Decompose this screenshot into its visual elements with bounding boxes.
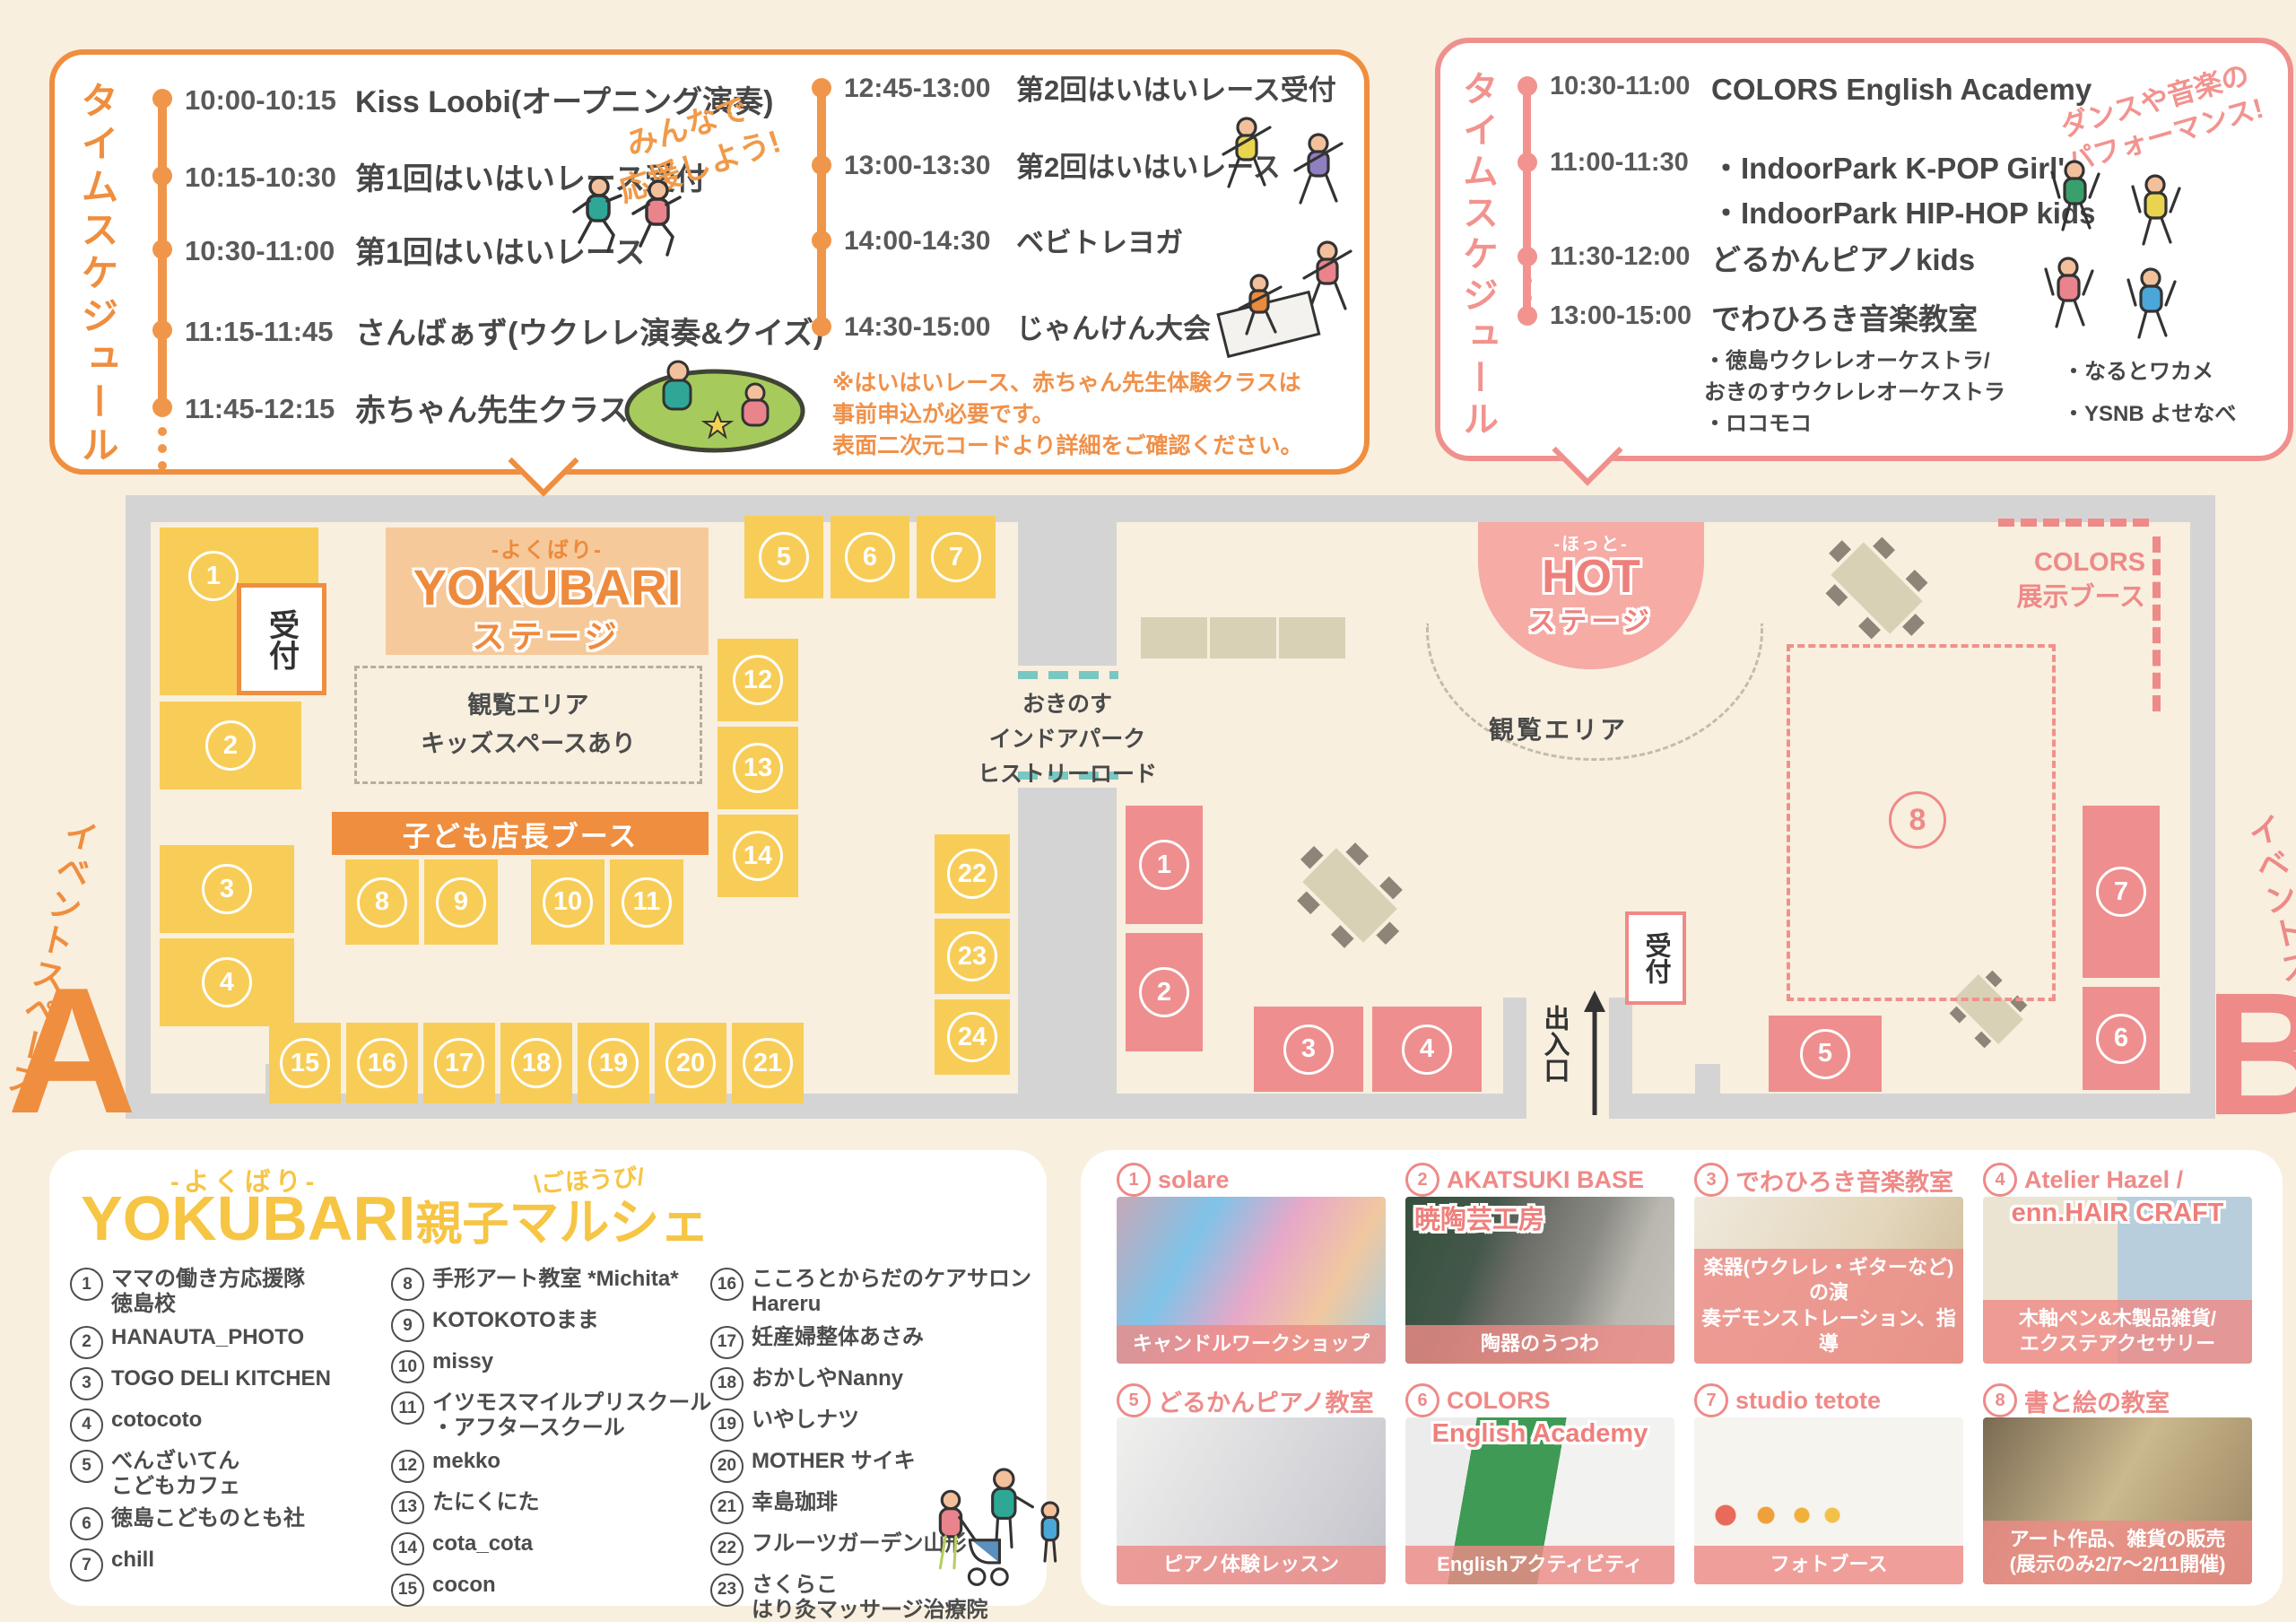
booth-b-7: 7 [2083, 806, 2160, 978]
booth-b-1: 1 [1126, 806, 1203, 924]
table-with-chairs [1278, 824, 1422, 967]
vendor-item-18: 18おかしやNanny [710, 1366, 1040, 1400]
vendor-photo-photobooth: フォトブース [1694, 1417, 1963, 1584]
runners-illustration [563, 172, 698, 262]
yoga-illustration [1195, 108, 1354, 368]
booth-a-14: 14 [717, 815, 798, 897]
booth-a-18: 18 [500, 1023, 572, 1103]
schedule-row: 12:45-13:00 第2回はいはいレース受付 [812, 72, 1350, 109]
marche-title-main: YOKUBARI [81, 1182, 415, 1254]
right-schedule-title: タイムスケジュール [1451, 70, 1503, 441]
timeline-dot [1518, 76, 1537, 96]
booth-a-4: 4 [160, 938, 294, 1026]
vendor-card-4: 4Atelier Hazel / enn.HAIR CRAFT 木軸ペン&木製品… [1983, 1163, 2252, 1364]
table-with-chairs [1807, 519, 1946, 658]
vendor-card-1: 1solare キャンドルワークショップ [1117, 1163, 1386, 1364]
reception-a: 受付 [237, 583, 326, 695]
table [1210, 617, 1276, 658]
schedule-row: 10:30-11:00 第1回はいはいレース [152, 233, 834, 275]
vendor-item-6: 6徳島こどものとも社 [70, 1506, 386, 1540]
vendor-item-7: 7chill [70, 1548, 386, 1582]
timeline-dot [1518, 247, 1537, 266]
kids-manager-banner: 子ども店長ブース [332, 812, 709, 855]
corridor-wall-upper [1018, 495, 1117, 666]
timeline-dot [152, 320, 172, 340]
booth-b-4: 4 [1372, 1007, 1482, 1092]
marche-title-suffix: 親子 [415, 1186, 509, 1253]
booth-a-13: 13 [717, 727, 798, 809]
event-flyer: タイムスケジュール 10:00-10:15 Kiss Loobi(オープニング演… [0, 0, 2296, 1622]
vendor-card-7: 7studio tetote フォトブース [1694, 1383, 1963, 1584]
dancers-illustration [2025, 151, 2209, 353]
vendor-card-5: 5どるかんピアノ教室 ピアノ体験レッスン [1117, 1383, 1386, 1584]
timeline-dot [152, 166, 172, 186]
vendor-item-8: 8手形アート教室 *Michita* [391, 1267, 714, 1301]
vendor-item-12: 12mekko [391, 1449, 714, 1483]
card-title: 4Atelier Hazel / [1983, 1163, 2252, 1197]
booth-a-21: 21 [732, 1023, 804, 1103]
card-title: 7studio tetote [1694, 1383, 1963, 1417]
vendor-item-19: 19いやしナツ [710, 1408, 1040, 1442]
corridor-label: おきのす インドアパーク ヒストリーロード [969, 687, 1166, 791]
yokubari-stage-name: YOKUBARI [386, 563, 709, 611]
timeline-dot [812, 78, 831, 98]
corridor-dashed-upper [1018, 671, 1118, 679]
dewahiroki-sub-left: ・徳島ウクレレオーケストラ/ おきのすウクレレオーケストラ ・ロコモコ [1704, 346, 2005, 440]
vendor-item-16: 16こころとからだのケアサロン Hareru [710, 1267, 1040, 1318]
marche-title-suffix2: マルシェ [509, 1182, 709, 1255]
event-space-b-letter: B [2205, 967, 2296, 1142]
vendor-photo-candles: キャンドルワークショップ [1117, 1197, 1386, 1364]
family-stroller-illustration [919, 1455, 1076, 1606]
card-title: 6COLORS [1405, 1383, 1674, 1417]
booth-a-16: 16 [346, 1023, 418, 1103]
vendor-list-col2: 8手形アート教室 *Michita* 9KOTOKOTOまま 10missy 1… [391, 1267, 714, 1614]
picnic-mat-illustration [619, 339, 812, 460]
vendor-item-14: 14cota_cota [391, 1531, 714, 1565]
booth-a-1-number: 1 [188, 551, 239, 601]
timeline-dot [152, 89, 172, 109]
booth-a-6: 6 [831, 516, 909, 598]
vendor-item-11: 11イツモスマイルプリスクール ・アフタースクール [391, 1391, 714, 1442]
vendor-item-1: 1ママの働き方応援隊 徳島校 [70, 1267, 386, 1318]
vendor-card-6: 6COLORS English Academy Englishアクティビティ [1405, 1383, 1674, 1584]
card-title: 8書と絵の教室 [1983, 1383, 2252, 1417]
booth-a-7: 7 [917, 516, 996, 598]
colors-booth-dash-right [2152, 536, 2161, 711]
marche-title: -よくばり- \ごほうび/ YOKUBARI 親子 マルシェ [81, 1161, 717, 1261]
vendor-item-4: 4cotocoto [70, 1408, 386, 1442]
vendor-item-10: 10missy [391, 1349, 714, 1383]
booth-a-5: 5 [744, 516, 823, 598]
entrance-pillar-left [1503, 998, 1526, 1096]
vendor-item-15: 15cocon [391, 1573, 714, 1607]
reception-b: 受付 [1625, 911, 1686, 1005]
booth-a-19: 19 [578, 1023, 649, 1103]
timeline-continuation [158, 427, 167, 470]
dewahiroki-sub-right: ・なるとワカメ ・YSNB よせなべ [2063, 352, 2236, 436]
left-schedule-title: タイムスケジュール [70, 81, 125, 468]
vendor-item-17: 17妊産婦整体あさみ [710, 1325, 1040, 1359]
timeline-continuation [1523, 276, 1532, 302]
card-title: 3でわひろき音楽教室 [1694, 1163, 1963, 1197]
wall-bottom-right [1609, 1094, 2215, 1119]
table [1141, 617, 1207, 658]
booth-a-22: 22 [935, 834, 1010, 913]
card-title: 2AKATSUKI BASE [1405, 1163, 1674, 1197]
timeline-dot [152, 240, 172, 259]
card-title: 5どるかんピアノ教室 [1117, 1383, 1386, 1417]
colors-booth-dash-top [1998, 519, 2149, 527]
wall-stub [1695, 1064, 1720, 1094]
vendor-card-2: 2AKATSUKI BASE 暁陶芸工房 陶器のうつわ [1405, 1163, 1674, 1364]
yokubari-stage-sub: ステージ [386, 611, 709, 658]
colors-booth-label: COLORS 展示ブース [2009, 545, 2145, 615]
vendor-photo-english: English Academy Englishアクティビティ [1405, 1417, 1674, 1584]
vendor-list-col1: 1ママの働き方応援隊 徳島校 2HANAUTA_PHOTO 3TOGO DELI… [70, 1267, 386, 1589]
yokubari-stage: -よくばり- YOKUBARI ステージ [386, 528, 709, 655]
schedule-row: 10:30-11:00 COLORS English Academy [1518, 70, 2145, 110]
viewing-area-a: 観覧エリア キッズスペースあり [354, 666, 702, 784]
booth-a-9: 9 [424, 859, 498, 945]
timeline-dot [1518, 306, 1537, 326]
booth-b-3: 3 [1254, 1007, 1363, 1092]
booth-a-2: 2 [160, 702, 301, 789]
vendor-card-3: 3でわひろき音楽教室 楽器(ウクレレ・ギターなど)の演 奏デモンストレーション、… [1694, 1163, 1963, 1364]
vendor-photo-pottery: 暁陶芸工房 陶器のうつわ [1405, 1197, 1674, 1364]
card-title: 1solare [1117, 1163, 1386, 1197]
booth-a-8: 8 [345, 859, 419, 945]
vendor-item-3: 3TOGO DELI KITCHEN [70, 1366, 386, 1400]
vendor-photo-art: アート作品、雑貨の販売 (展示のみ2/7〜2/11開催) [1983, 1417, 2252, 1584]
exit-arrow-icon [1575, 985, 1614, 1120]
vendor-item-13: 13たにくにた [391, 1490, 714, 1524]
vendor-item-2: 2HANAUTA_PHOTO [70, 1325, 386, 1359]
booth-a-3: 3 [160, 845, 294, 933]
booth-a-12: 12 [717, 639, 798, 721]
corridor-wall-lower [1018, 788, 1117, 1094]
vendor-photo-piano: ピアノ体験レッスン [1117, 1417, 1386, 1584]
booth-a-20: 20 [655, 1023, 726, 1103]
timeline-dot [812, 155, 831, 175]
vendor-card-8: 8書と絵の教室 アート作品、雑貨の販売 (展示のみ2/7〜2/11開催) [1983, 1383, 2252, 1584]
booth-b-5: 5 [1769, 1016, 1882, 1092]
vendor-item-5: 5べんざいてん こどもカフェ [70, 1449, 386, 1500]
vendor-photo-music: 楽器(ウクレレ・ギターなど)の演 奏デモンストレーション、指導 [1694, 1197, 1963, 1364]
booth-a-11: 11 [610, 859, 683, 945]
booth-a-10: 10 [531, 859, 604, 945]
booth-b-8-number: 8 [1889, 791, 1946, 849]
timeline-dot [812, 317, 831, 336]
booth-b-2: 2 [1126, 933, 1203, 1051]
preregistration-note: ※はいはいレース、赤ちゃん先生体験クラスは 事前申込が必要です。 表面二次元コー… [832, 368, 1348, 462]
booth-a-15: 15 [269, 1023, 341, 1103]
hot-stage-name: HOT [1478, 555, 1704, 599]
vendor-photo-pens-hair: enn.HAIR CRAFT 木軸ペン&木製品雑貨/ エクステアクセサリー [1983, 1197, 2252, 1364]
timeline-dot [812, 231, 831, 250]
timeline-dot [1518, 153, 1537, 172]
timeline-dot [152, 397, 172, 417]
booth-a-17: 17 [423, 1023, 495, 1103]
exit-label: 出入口 [1535, 1005, 1573, 1083]
viewing-area-b-label: 観覧エリア [1489, 711, 1628, 746]
vendor-item-9: 9KOTOKOTOまま [391, 1308, 714, 1342]
event-space-a-letter: A [7, 962, 136, 1141]
booth-b-6: 6 [2083, 987, 2160, 1090]
table [1279, 617, 1345, 658]
booth-a-23: 23 [935, 919, 1010, 994]
booth-a-24: 24 [935, 999, 1010, 1075]
